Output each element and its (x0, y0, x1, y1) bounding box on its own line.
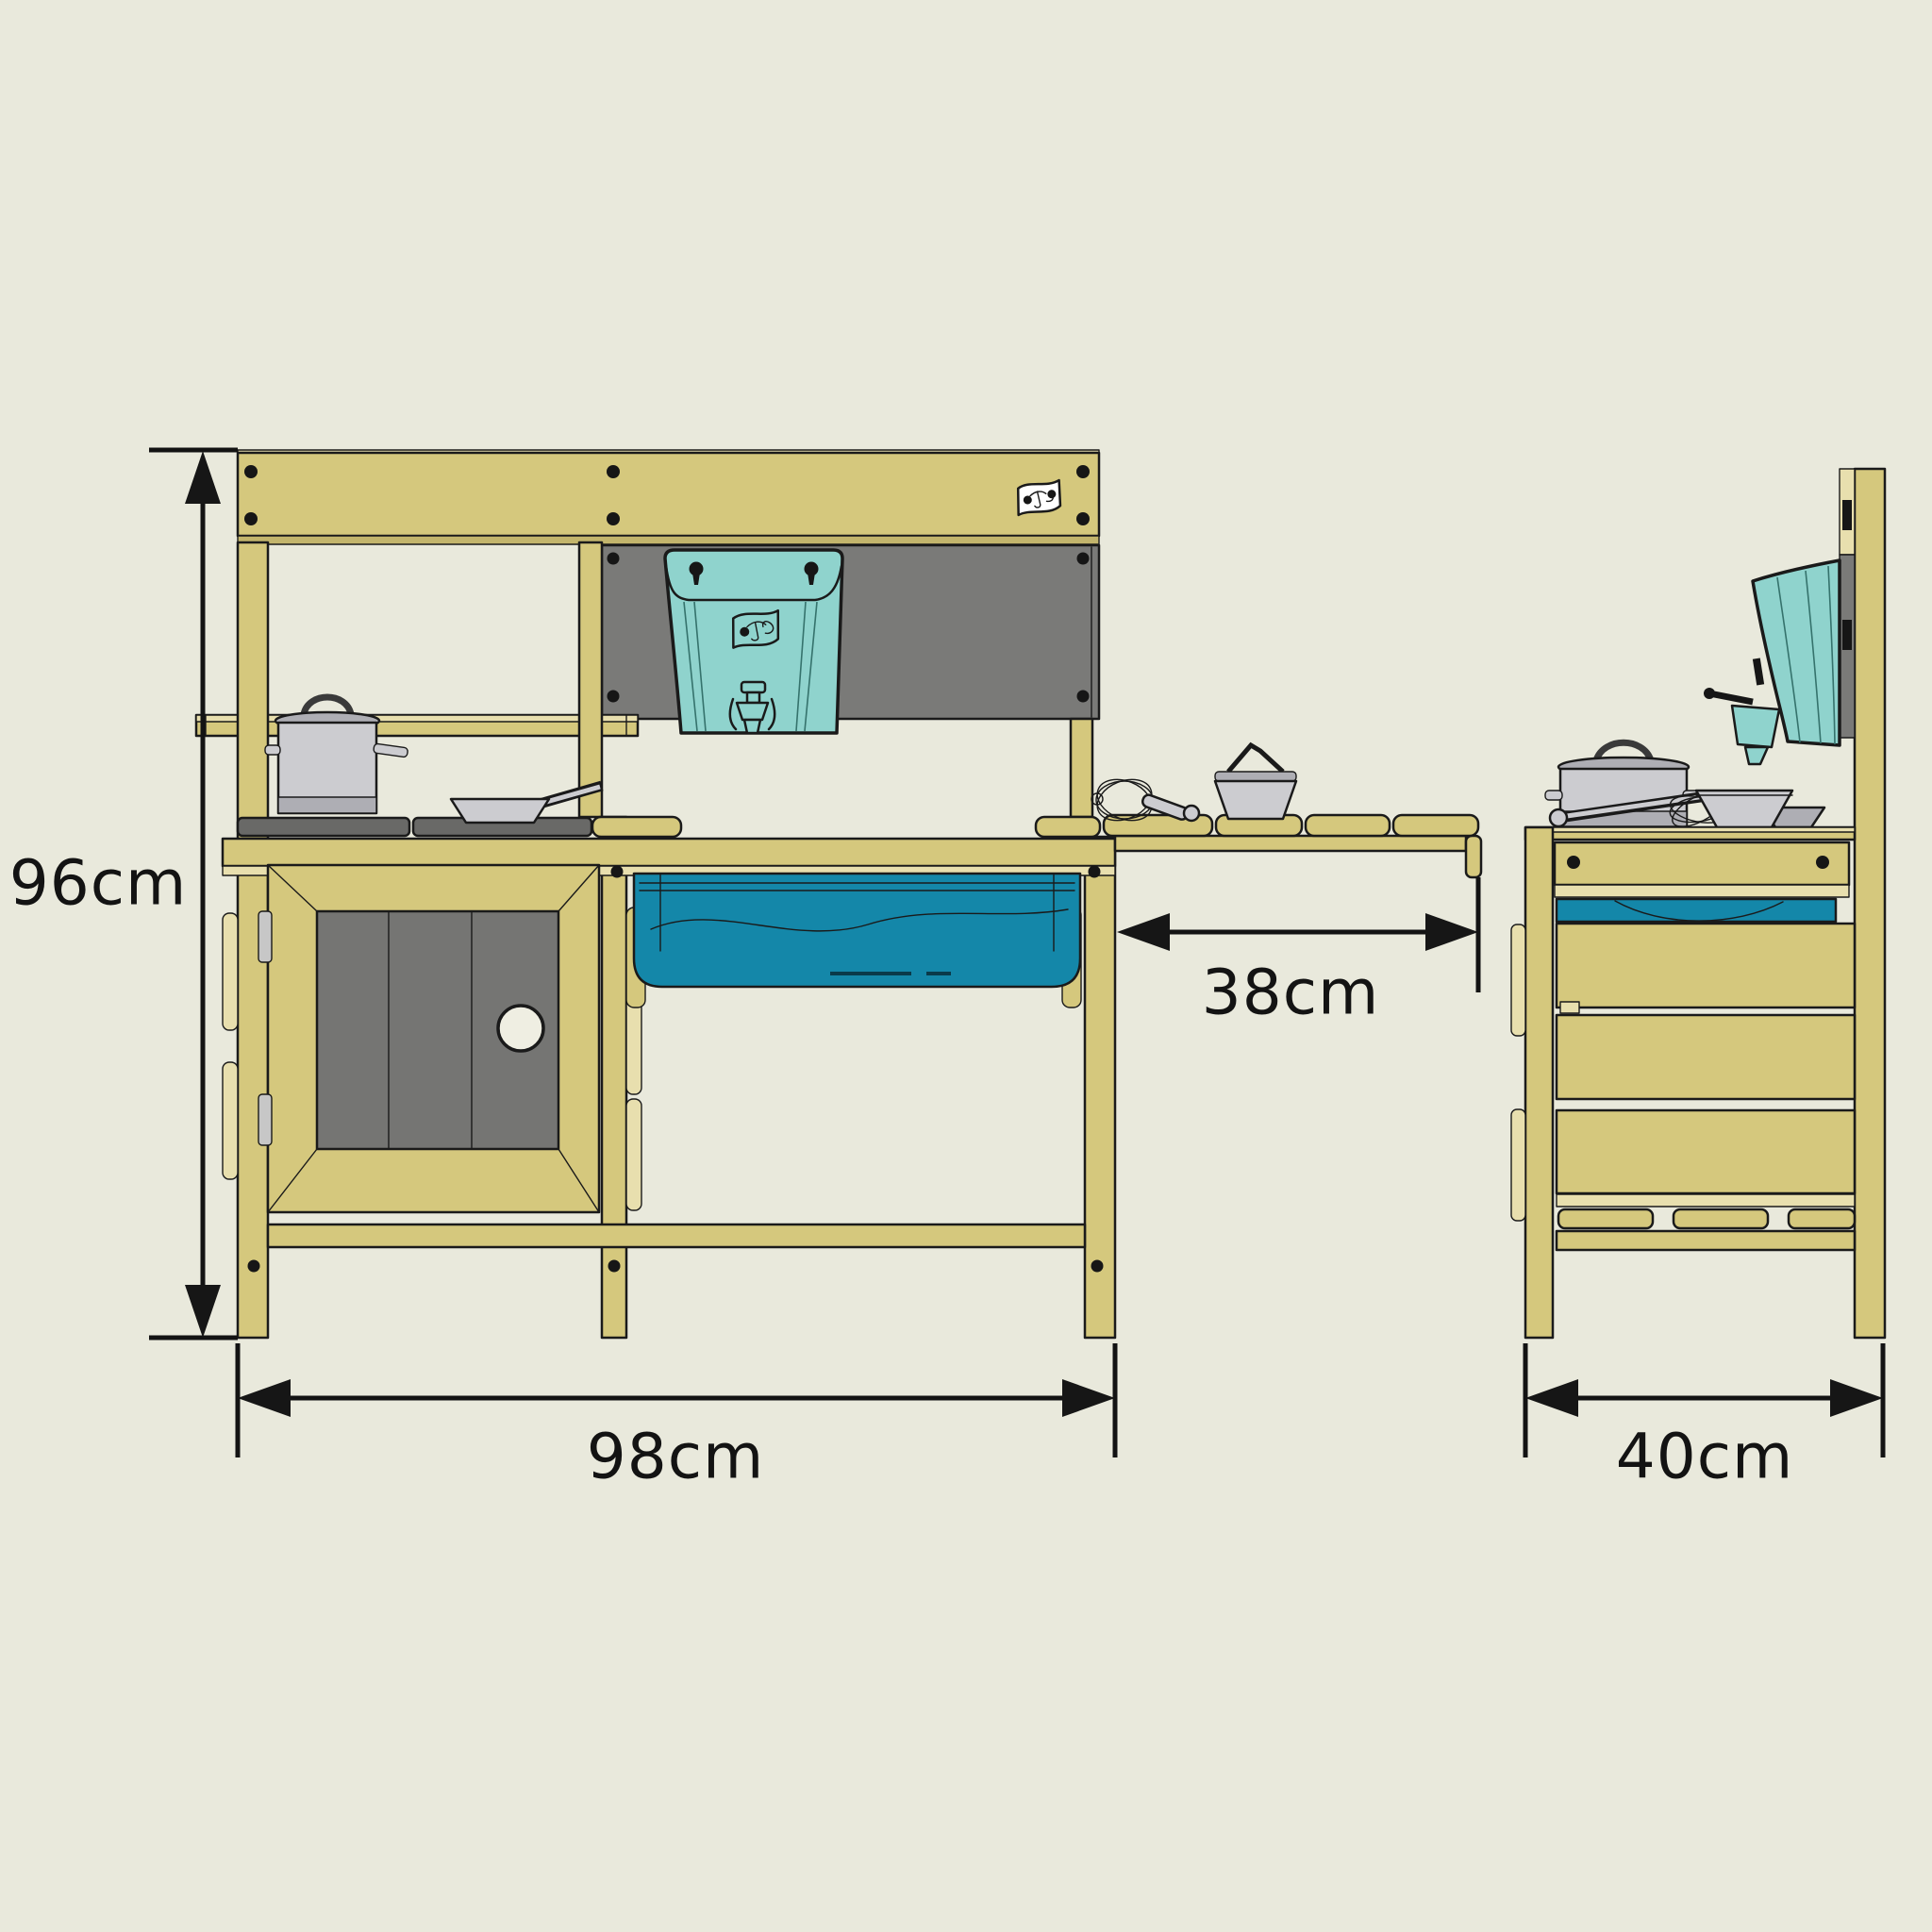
header-board-bottom-edge (238, 536, 1099, 544)
keyhole-slot (1842, 500, 1852, 530)
side-shelf-slat (1674, 1209, 1768, 1228)
side-panel-board (1557, 1015, 1855, 1099)
sink-tub (634, 874, 1080, 987)
arrowhead-right (1425, 913, 1478, 951)
screw (1076, 512, 1090, 525)
side-table-slat (1306, 815, 1390, 836)
screw (1567, 856, 1580, 869)
dimension-label-height: 96cm (9, 847, 188, 920)
screw (1816, 856, 1829, 869)
water-dispenser (665, 550, 842, 733)
bucket (1215, 745, 1296, 819)
dimension-label-width: 98cm (587, 1421, 765, 1493)
front-apron (223, 839, 1115, 866)
side-table-bracket (1466, 836, 1481, 877)
side-shelf-rail (1557, 1194, 1855, 1207)
arrowhead-down (185, 1285, 221, 1338)
counter-cap-right (1036, 817, 1100, 837)
side-panel-board (1557, 924, 1855, 1008)
side-table-slat (1393, 815, 1478, 836)
side-shelf-slat (1558, 1209, 1653, 1228)
side-front-leg (1525, 827, 1553, 1338)
side-dispenser-tap (1704, 688, 1779, 764)
arrowhead-right (1062, 1379, 1115, 1417)
screw (244, 512, 258, 525)
side-shelf-slat (1789, 1209, 1855, 1228)
side-rail-tab (1511, 1109, 1525, 1221)
arrowhead-left (238, 1379, 291, 1417)
hinge (258, 911, 272, 962)
door-porthole (498, 1006, 543, 1051)
arrowhead-right (1830, 1379, 1883, 1417)
dimension-label-side-table: 38cm (1202, 957, 1380, 1029)
diagram-drawing (0, 0, 1932, 1932)
side-panel-board (1557, 1110, 1855, 1193)
tp-logo-dispenser (731, 610, 780, 647)
front-view (149, 450, 1481, 1457)
screw (607, 512, 620, 525)
screw (248, 1260, 260, 1273)
pot-handle (265, 745, 280, 755)
side-back-post (1855, 469, 1885, 1338)
screw (1076, 465, 1090, 478)
dimension-label-depth: 40cm (1616, 1421, 1794, 1493)
front-center-leg (602, 817, 626, 1338)
arrowhead-left (1525, 1379, 1578, 1417)
bucket-handle (1228, 745, 1283, 772)
screw (1089, 866, 1101, 878)
side-rail-tab (223, 1062, 238, 1179)
hob-strip (238, 818, 409, 836)
dimension-diagram: 96cm 98cm 38cm 40cm (0, 0, 1932, 1932)
cabinet (258, 865, 599, 1212)
pot-handle (374, 743, 408, 758)
side-table-rail (1115, 836, 1466, 851)
tp-logo-header (1016, 480, 1062, 515)
side-dispenser (1704, 560, 1840, 764)
screw (244, 465, 258, 478)
side-rail-tab (626, 1099, 641, 1210)
side-apron (1555, 842, 1849, 885)
side-view (1511, 469, 1885, 1457)
side-rail-tab (1511, 924, 1525, 1036)
side-rail-tab (223, 913, 238, 1030)
screw (608, 1260, 621, 1273)
front-bottom-rail (268, 1224, 1085, 1247)
pot-base (278, 797, 376, 813)
arrowhead-left (1117, 913, 1170, 951)
side-rail-upper (1555, 885, 1849, 897)
front-right-post-upper (1071, 719, 1092, 817)
front-center-post-upper (579, 542, 602, 817)
keyhole-slot (1842, 620, 1852, 650)
hinge (258, 1094, 272, 1145)
screw (607, 465, 620, 478)
side-bottom-rail (1557, 1231, 1855, 1250)
counter-cap-center (592, 817, 681, 837)
screw (608, 553, 620, 565)
screw (1077, 553, 1090, 565)
dispenser-slot (1753, 658, 1764, 686)
side-panel-notch (1560, 1002, 1579, 1013)
arrowhead-up (185, 451, 221, 504)
screw (608, 691, 620, 703)
header-board (238, 453, 1099, 536)
screw (611, 866, 624, 878)
side-basin-edge (1557, 899, 1836, 922)
screw (1091, 1260, 1104, 1273)
side-counter-edge (1525, 827, 1855, 832)
screw (1077, 691, 1090, 703)
